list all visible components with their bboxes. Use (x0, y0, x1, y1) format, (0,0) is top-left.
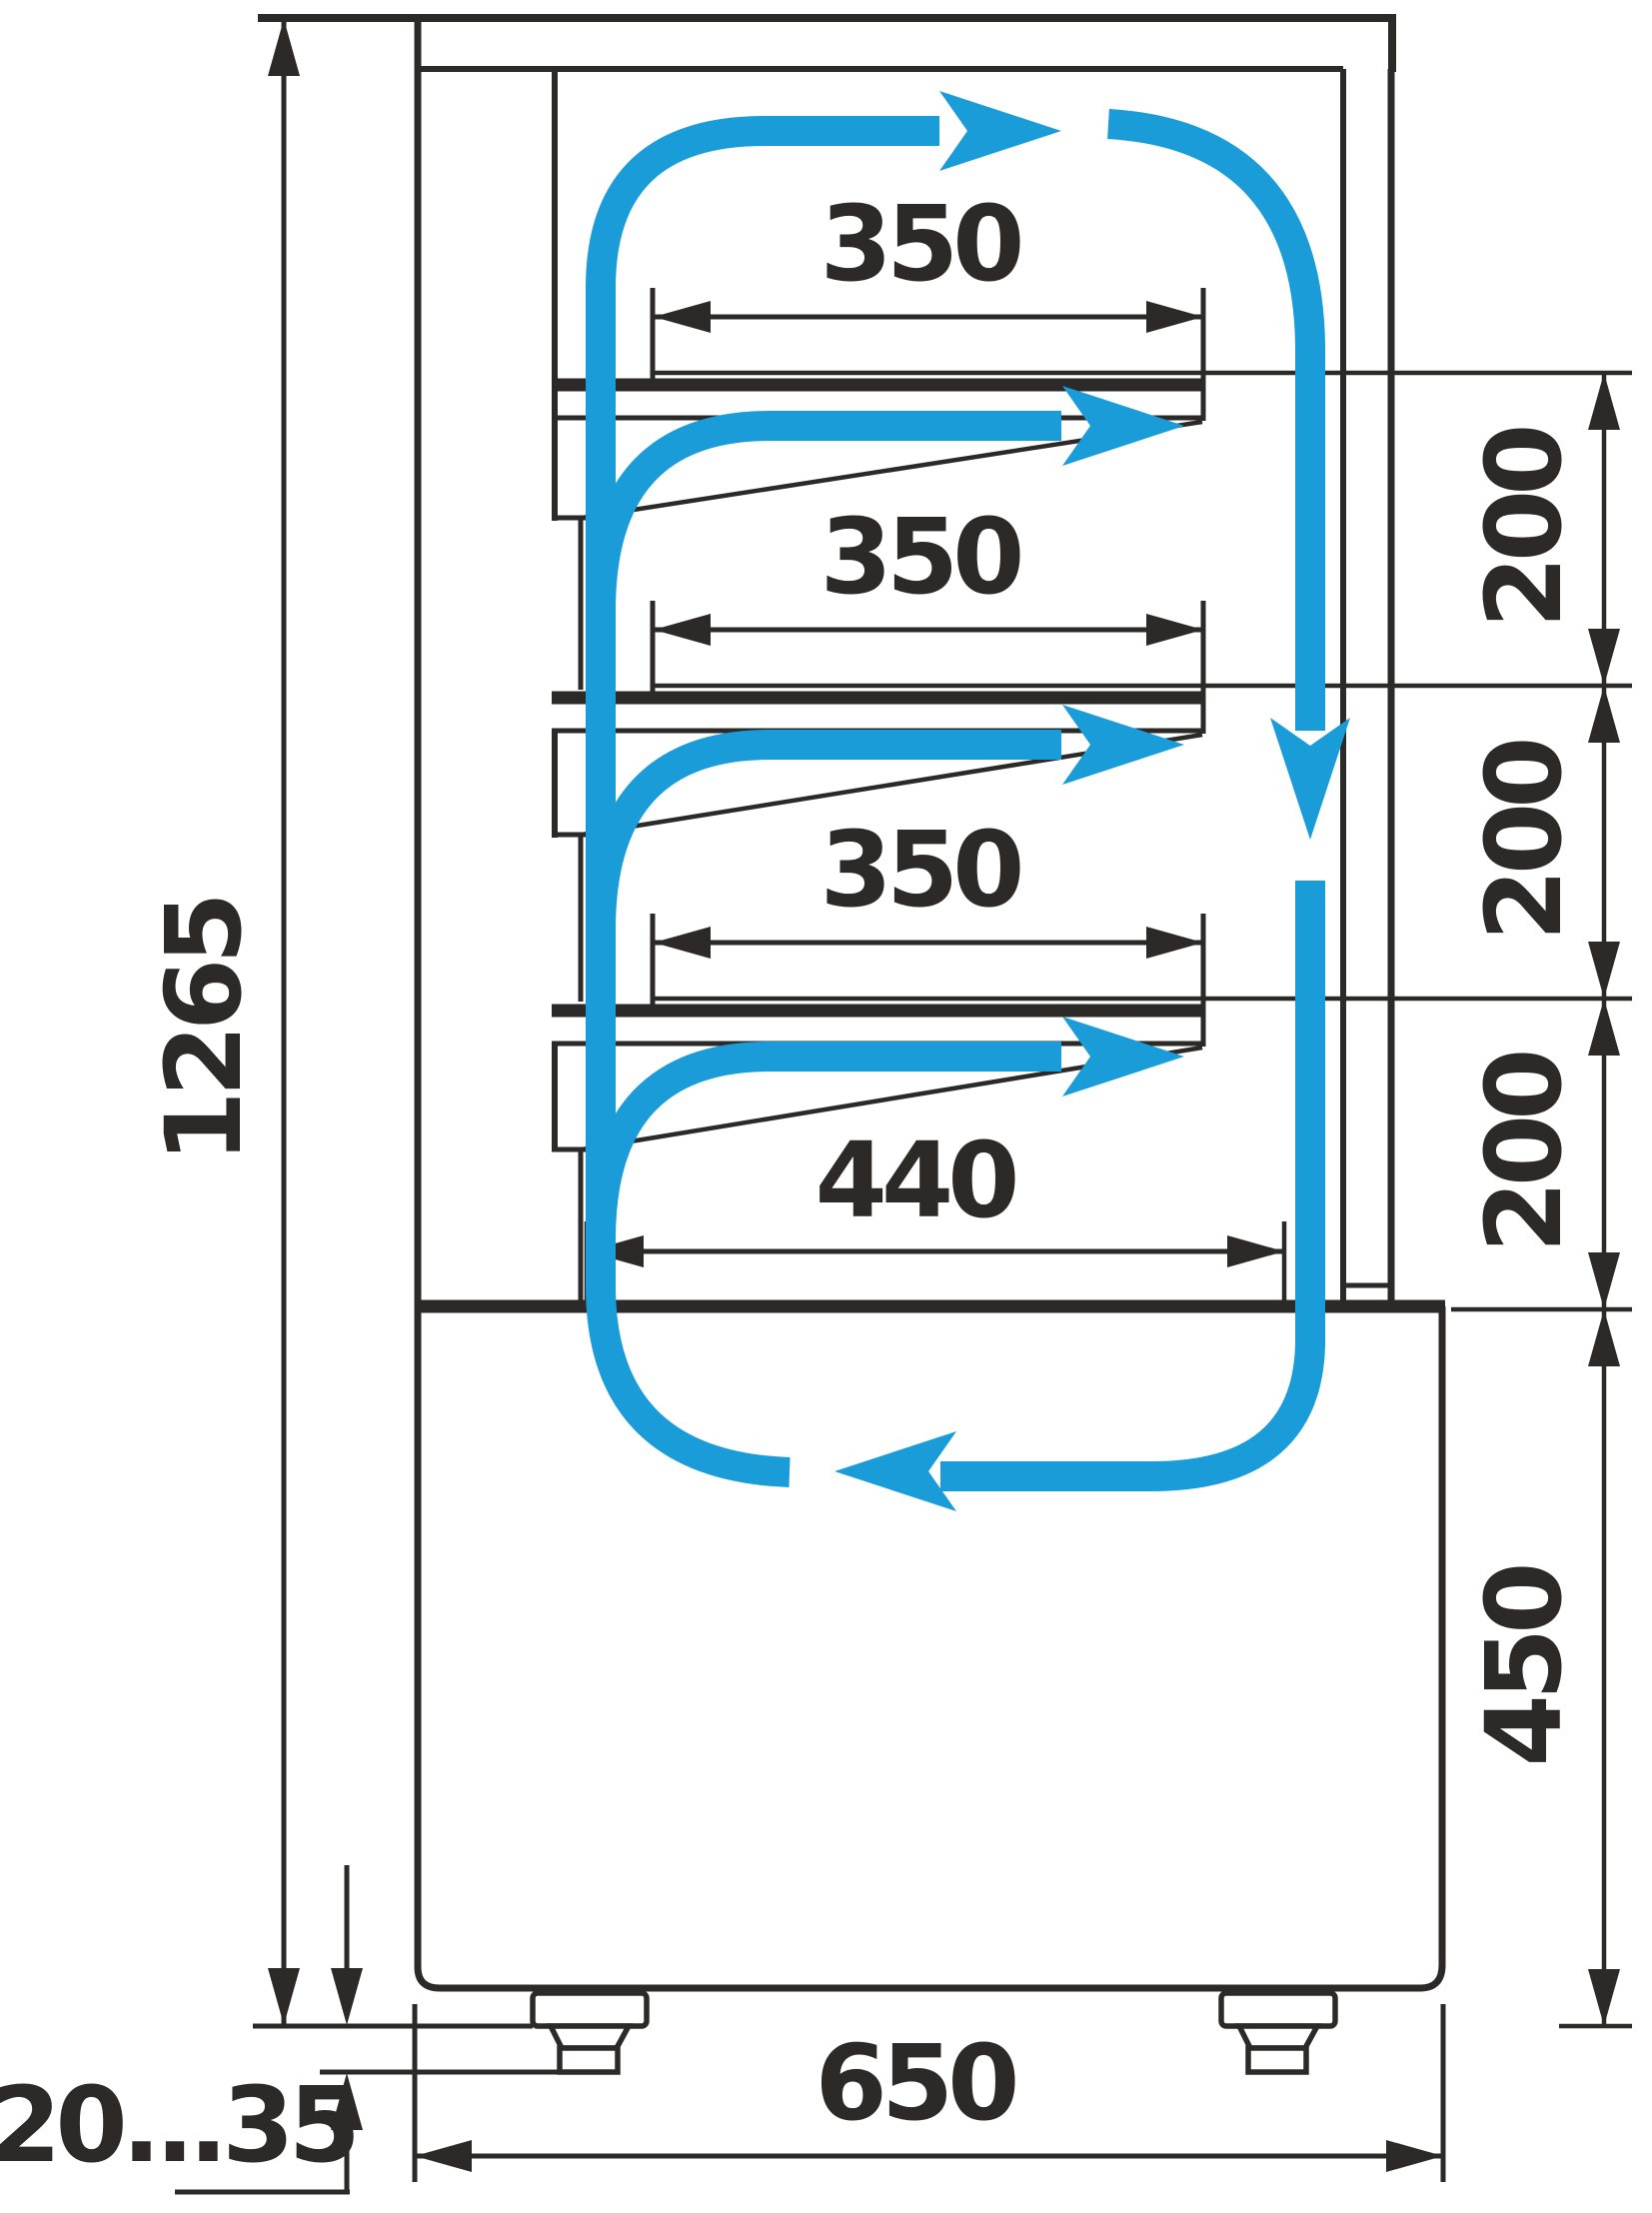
dim-450-arrow-top (1588, 1309, 1620, 1366)
dim-1265-arrow-bottom (268, 1968, 300, 2025)
label-bottom-shelf-width: 440 (815, 1119, 1015, 1241)
dim-2035-arrow-down (331, 1968, 363, 2025)
dim-650-arrow-left (415, 2140, 472, 2172)
display-case-technical-drawing: 350 350 350 440 650 20...35 1265 200 200… (0, 0, 1652, 2213)
dim-200-3-arrow-top (1588, 999, 1620, 1056)
label-foot-adjust-range: 20...35 (0, 2064, 355, 2186)
label-shelf3-width: 350 (820, 809, 1020, 931)
airflow-return-arrowhead-icon (834, 1431, 956, 1511)
airflow-down-arrowhead-icon (1270, 718, 1350, 840)
label-shelf1-width: 350 (820, 183, 1020, 305)
left-wall-and-base-outline (418, 14, 1442, 1988)
right-foot-pad (1248, 2048, 1306, 2072)
label-base-height: 450 (1463, 1566, 1585, 1767)
right-foot (1221, 1991, 1335, 2072)
left-foot-pad (560, 2048, 618, 2072)
label-shelf-gap-3: 200 (1463, 1053, 1585, 1253)
dim-200-1-arrow-bottom (1588, 629, 1620, 686)
dim-200-3-arrow-bottom (1588, 1252, 1620, 1309)
drawing-canvas: 350 350 350 440 650 20...35 1265 200 200… (0, 0, 1652, 2213)
label-overall-height: 1265 (143, 898, 265, 1162)
left-foot-plate (533, 1993, 647, 2026)
dim-440-arrow-right (1227, 1235, 1284, 1267)
label-shelf-gap-1: 200 (1463, 428, 1585, 629)
dim-200-2-arrow-top (1588, 686, 1620, 743)
dim-350-1-arrow-left (654, 301, 711, 333)
label-shelf-gap-2: 200 (1463, 741, 1585, 942)
airflow-branch-3-arrowhead-icon (1062, 1017, 1184, 1097)
label-shelf2-width: 350 (820, 496, 1020, 618)
airflow-branch-2-arrowhead-icon (1062, 705, 1184, 785)
dim-350-2-arrow-left (654, 614, 711, 646)
right-foot-plate (1221, 1993, 1335, 2026)
airflow-top-arrowhead-icon (939, 91, 1061, 171)
dim-450-arrow-bottom (1588, 1969, 1620, 2026)
left-foot (533, 1991, 647, 2072)
dim-350-3-arrow-left (654, 927, 711, 959)
dim-1265-arrow-top (268, 19, 300, 76)
label-depth: 650 (815, 2022, 1015, 2144)
dim-200-2-arrow-bottom (1588, 942, 1620, 999)
dim-200-1-arrow-top (1588, 373, 1620, 430)
right-foot-cone (1239, 2026, 1317, 2048)
dim-350-3-arrow-right (1146, 927, 1203, 959)
dim-650-arrow-right (1386, 2140, 1443, 2172)
dim-350-1-arrow-right (1146, 301, 1203, 333)
dim-350-2-arrow-right (1146, 614, 1203, 646)
dimension-annotations (175, 19, 1632, 2192)
airflow-branch-1-arrowhead-icon (1062, 386, 1184, 466)
left-foot-cone (551, 2026, 629, 2048)
cabinet-structure (258, 14, 1632, 1988)
